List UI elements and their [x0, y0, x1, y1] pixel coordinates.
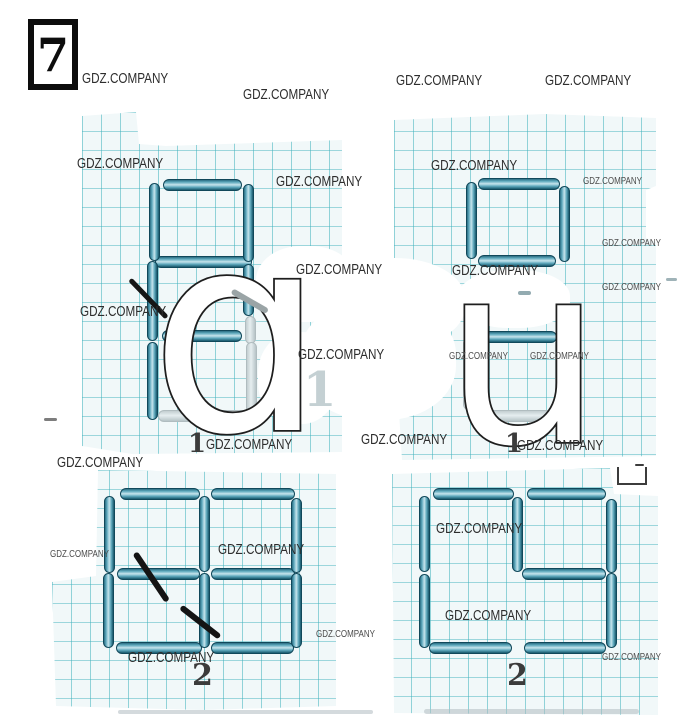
- pencil-doodle-tick: [635, 464, 644, 466]
- matchstick-h: [211, 642, 294, 654]
- watermark-text: GDZ.COMPANY: [436, 520, 522, 537]
- matchstick-v: [104, 496, 115, 573]
- problem-number-box: 7: [28, 19, 78, 90]
- matchstick-h: [433, 488, 514, 500]
- watermark-text: GDZ.COMPANY: [57, 454, 143, 471]
- matchstick-v-faded: [555, 338, 566, 410]
- watermark-text: GDZ.COMPANY: [361, 431, 447, 448]
- watermark-text: GDZ.COMPANY: [396, 72, 482, 89]
- matchstick-v: [606, 499, 617, 573]
- watermark-text: GDZ.COMPANY: [602, 282, 661, 293]
- scanned-page: ɑ u 1 GDZ.COMPANYGDZ.COMPANYGDZ.COMPANYG…: [0, 0, 680, 719]
- watermark-text: GDZ.COMPANY: [545, 72, 631, 89]
- matchstick-h: [117, 568, 200, 580]
- matchstick-h: [163, 179, 242, 191]
- matchstick-v-faded: [246, 342, 257, 414]
- watermark-text: GDZ.COMPANY: [298, 346, 384, 363]
- watermark-text: GDZ.COMPANY: [243, 86, 329, 103]
- watermark-text: GDZ.COMPANY: [445, 607, 531, 624]
- watermark-text: GDZ.COMPANY: [449, 351, 508, 362]
- watermark-text: GDZ.COMPANY: [316, 629, 375, 640]
- watermark-text: GDZ.COMPANY: [206, 436, 292, 453]
- matchstick-v: [419, 574, 430, 648]
- matchstick-v: [199, 573, 210, 648]
- watermark-text: GDZ.COMPANY: [80, 303, 166, 320]
- scan-smudge: [118, 710, 373, 714]
- watermark-text: GDZ.COMPANY: [276, 173, 362, 190]
- matchstick-v-faded: [245, 316, 256, 344]
- matchstick-h-faded: [472, 410, 558, 422]
- matchstick-h: [478, 178, 560, 190]
- matchstick-v: [243, 184, 254, 262]
- figure2-left-label: 2: [192, 661, 213, 691]
- scan-smudge: [424, 709, 639, 714]
- matchstick-v: [466, 182, 477, 259]
- watermark-text: GDZ.COMPANY: [82, 70, 168, 87]
- matchstick-v: [559, 186, 570, 262]
- watermark-text: GDZ.COMPANY: [296, 261, 382, 278]
- matchstick-v: [149, 183, 160, 261]
- pencil-doodle: [617, 467, 647, 485]
- figure1-right-label: 1: [505, 431, 523, 457]
- matchstick-v: [103, 573, 114, 648]
- watermark-text: GDZ.COMPANY: [218, 541, 304, 558]
- watermark-text: GDZ.COMPANY: [530, 351, 589, 362]
- matchstick-v: [291, 573, 302, 648]
- matchstick-v-faded: [463, 338, 474, 410]
- margin-dash: [44, 418, 57, 421]
- margin-dash: [666, 278, 677, 281]
- watermark-text: GDZ.COMPANY: [431, 157, 517, 174]
- matchstick-h: [522, 568, 606, 580]
- matchstick-h: [475, 331, 557, 343]
- matchstick-h: [120, 488, 200, 500]
- watermark-text: GDZ.COMPANY: [602, 652, 661, 663]
- matchstick-v: [243, 264, 254, 316]
- matchstick-v: [199, 496, 210, 572]
- matchstick-v: [419, 496, 430, 572]
- matchstick-h: [524, 642, 606, 654]
- watermark-text: GDZ.COMPANY: [77, 155, 163, 172]
- watermark-text: GDZ.COMPANY: [583, 176, 642, 187]
- matchstick-h: [211, 488, 295, 500]
- figure1-left-label: 1: [188, 431, 206, 457]
- watermark-text: GDZ.COMPANY: [50, 549, 109, 560]
- matchstick-h: [211, 568, 295, 580]
- matchstick-h: [155, 256, 252, 268]
- problem-number: 7: [37, 32, 69, 78]
- faint-pencil-digit: 1: [303, 366, 336, 414]
- matchstick-h-faded: [158, 410, 250, 422]
- watermark-text: GDZ.COMPANY: [452, 262, 538, 279]
- matchstick-v: [606, 573, 617, 648]
- figure2-right-label: 2: [507, 661, 528, 691]
- matchstick-h: [429, 642, 512, 654]
- matchstick-v: [147, 342, 158, 420]
- watermark-text: GDZ.COMPANY: [517, 437, 603, 454]
- pencil-dash: [518, 291, 531, 295]
- matchstick-v: [291, 498, 302, 573]
- matchstick-h: [527, 488, 606, 500]
- matchstick-h: [162, 330, 242, 342]
- watermark-text: GDZ.COMPANY: [602, 238, 661, 249]
